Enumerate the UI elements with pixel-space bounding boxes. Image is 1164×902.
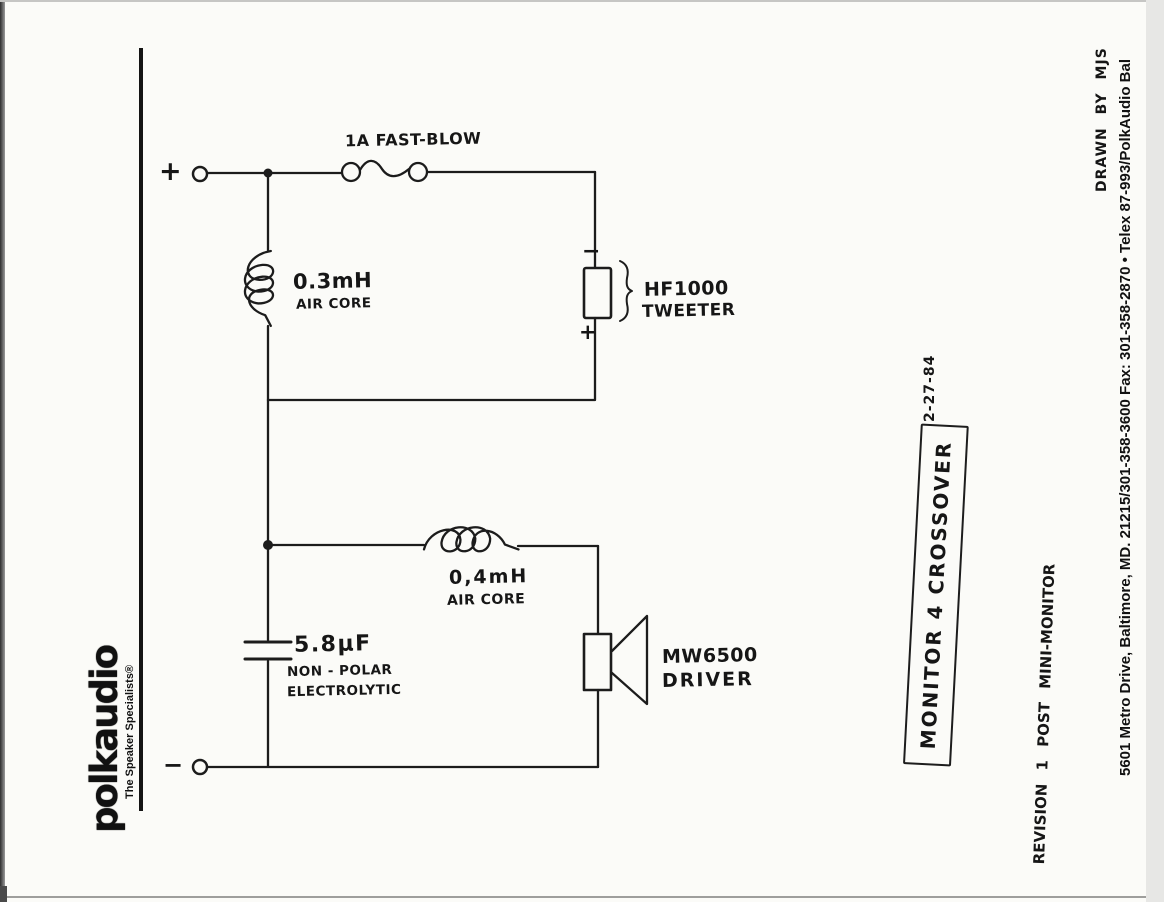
input-minus-sign: − <box>163 753 183 777</box>
scanned-schematic-page: polkaudio The Speaker Specialists® <box>0 0 1164 902</box>
address-line: 5601 Metro Drive, Baltimore, MD. 21215/3… <box>1117 59 1134 776</box>
inductor2-type-label: AIR CORE <box>447 591 526 609</box>
fuse-element <box>360 161 409 176</box>
input-terminal-minus <box>193 760 207 774</box>
inductor2-symbol <box>424 527 519 551</box>
title-box-text: MONITOR 4 CROSSOVER <box>916 440 956 750</box>
tweeter-brace <box>620 261 632 321</box>
junction-top <box>264 169 273 178</box>
capacitor-desc2-label: ELECTROLYTIC <box>287 683 402 701</box>
wire-tweeter-return <box>268 318 595 400</box>
fuse-label: 1A FAST-BLOW <box>345 130 482 151</box>
fuse-cap-left <box>342 163 360 181</box>
inductor1-type-label: AIR CORE <box>296 296 372 313</box>
inductor1-value-label: 0.3mH <box>293 268 373 294</box>
date-note: 2-27-84 <box>922 355 938 422</box>
woofer-type-label: DRIVER <box>662 669 754 693</box>
tweeter-symbol <box>584 268 611 318</box>
tweeter-pos-sign: + <box>579 322 597 343</box>
tweeter-model-label: HF1000 <box>644 278 729 302</box>
drawn-by-note: DRAWN BY MJS <box>1094 47 1110 192</box>
woofer-cone <box>612 616 647 704</box>
input-plus-sign: + <box>159 158 182 185</box>
capacitor-desc1-label: NON - POLAR <box>287 663 393 681</box>
woofer-symbol <box>584 634 611 690</box>
tweeter-type-label: TWEETER <box>642 301 736 322</box>
woofer-model-label: MW6500 <box>662 645 758 669</box>
tweeter-neg-sign: − <box>582 241 600 263</box>
input-terminal-plus <box>193 167 207 181</box>
capacitor-value-label: 5.8µF <box>294 631 372 658</box>
fuse-cap-right <box>409 163 427 181</box>
inductor1-symbol <box>245 251 273 326</box>
inductor2-value-label: 0,4mH <box>449 566 529 590</box>
junction-mid <box>263 540 273 550</box>
